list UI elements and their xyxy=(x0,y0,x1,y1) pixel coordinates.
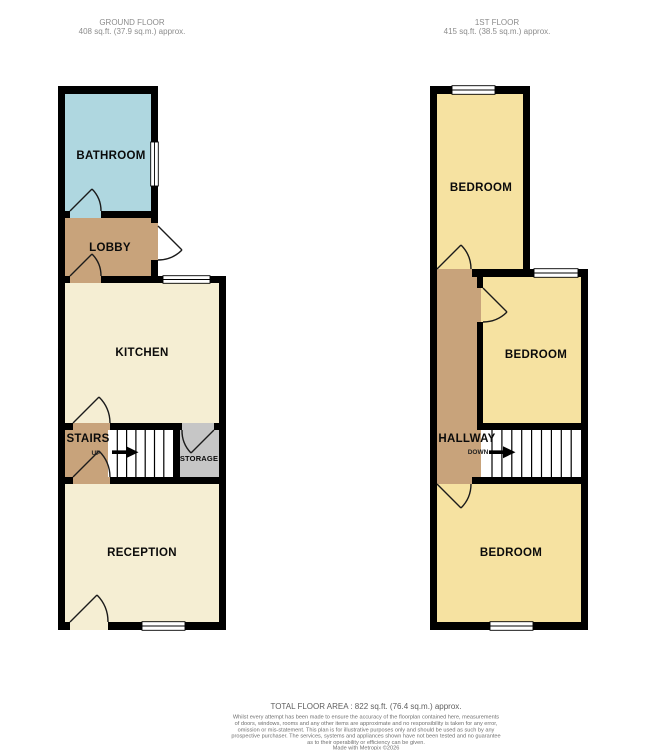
stairs-label: STAIRS xyxy=(66,433,109,445)
lobby-side-entrance-door xyxy=(158,226,182,260)
kitchen-window xyxy=(163,276,210,284)
bedroom-back-label: BEDROOM xyxy=(480,547,542,559)
kitchen-label: KITCHEN xyxy=(115,347,168,359)
stairs-down-label: DOWN xyxy=(468,449,489,456)
disclaimer-line: prospective purchaser. The services, sys… xyxy=(231,734,500,740)
total-floor-area: TOTAL FLOOR AREA : 822 sq.ft. (76.4 sq.m… xyxy=(270,702,461,711)
bathroom-label: BATHROOM xyxy=(76,150,145,162)
disclaimer-line: of doors, windows, rooms and any other i… xyxy=(235,721,498,727)
floorplan-canvas: GROUND FLOOR 408 sq.ft. (37.9 sq.m.) app… xyxy=(0,0,655,750)
floorplan-page: GROUND FLOOR 408 sq.ft. (37.9 sq.m.) app… xyxy=(0,0,655,750)
reception-label: RECEPTION xyxy=(107,547,177,559)
disclaimer-line: omission or mis-statement. This plan is … xyxy=(238,727,495,733)
storage-label: STORAGE xyxy=(180,454,218,463)
bathroom-window xyxy=(151,142,159,186)
lobby-label: LOBBY xyxy=(89,242,131,254)
bedroom-middle-label: BEDROOM xyxy=(505,349,567,361)
first-floor-title: 1ST FLOOR xyxy=(475,18,520,27)
first-floor-area: 415 sq.ft. (38.5 sq.m.) approx. xyxy=(444,27,551,36)
stairs-up-label: UP xyxy=(91,450,101,457)
metropix-credit: Made with Metropix ©2026 xyxy=(333,745,400,750)
disclaimer-line: Whilst every attempt has been made to en… xyxy=(233,715,499,721)
ground-floor-plan: GROUND FLOOR 408 sq.ft. (37.9 sq.m.) app… xyxy=(58,18,226,630)
bedroom-front-window xyxy=(452,86,495,95)
footer: TOTAL FLOOR AREA : 822 sq.ft. (76.4 sq.m… xyxy=(231,702,500,750)
ground-floor-area: 408 sq.ft. (37.9 sq.m.) approx. xyxy=(79,27,186,36)
first-floor-plan: 1ST FLOOR 415 sq.ft. (38.5 sq.m.) approx… xyxy=(430,18,588,630)
bedroom-front-label: BEDROOM xyxy=(450,182,512,194)
reception-window xyxy=(142,622,185,631)
ground-floor-title: GROUND FLOOR xyxy=(99,18,165,27)
hallway-label: HALLWAY xyxy=(438,433,495,445)
bedroom-middle-window xyxy=(534,269,578,278)
bedroom-back-window xyxy=(490,622,533,631)
